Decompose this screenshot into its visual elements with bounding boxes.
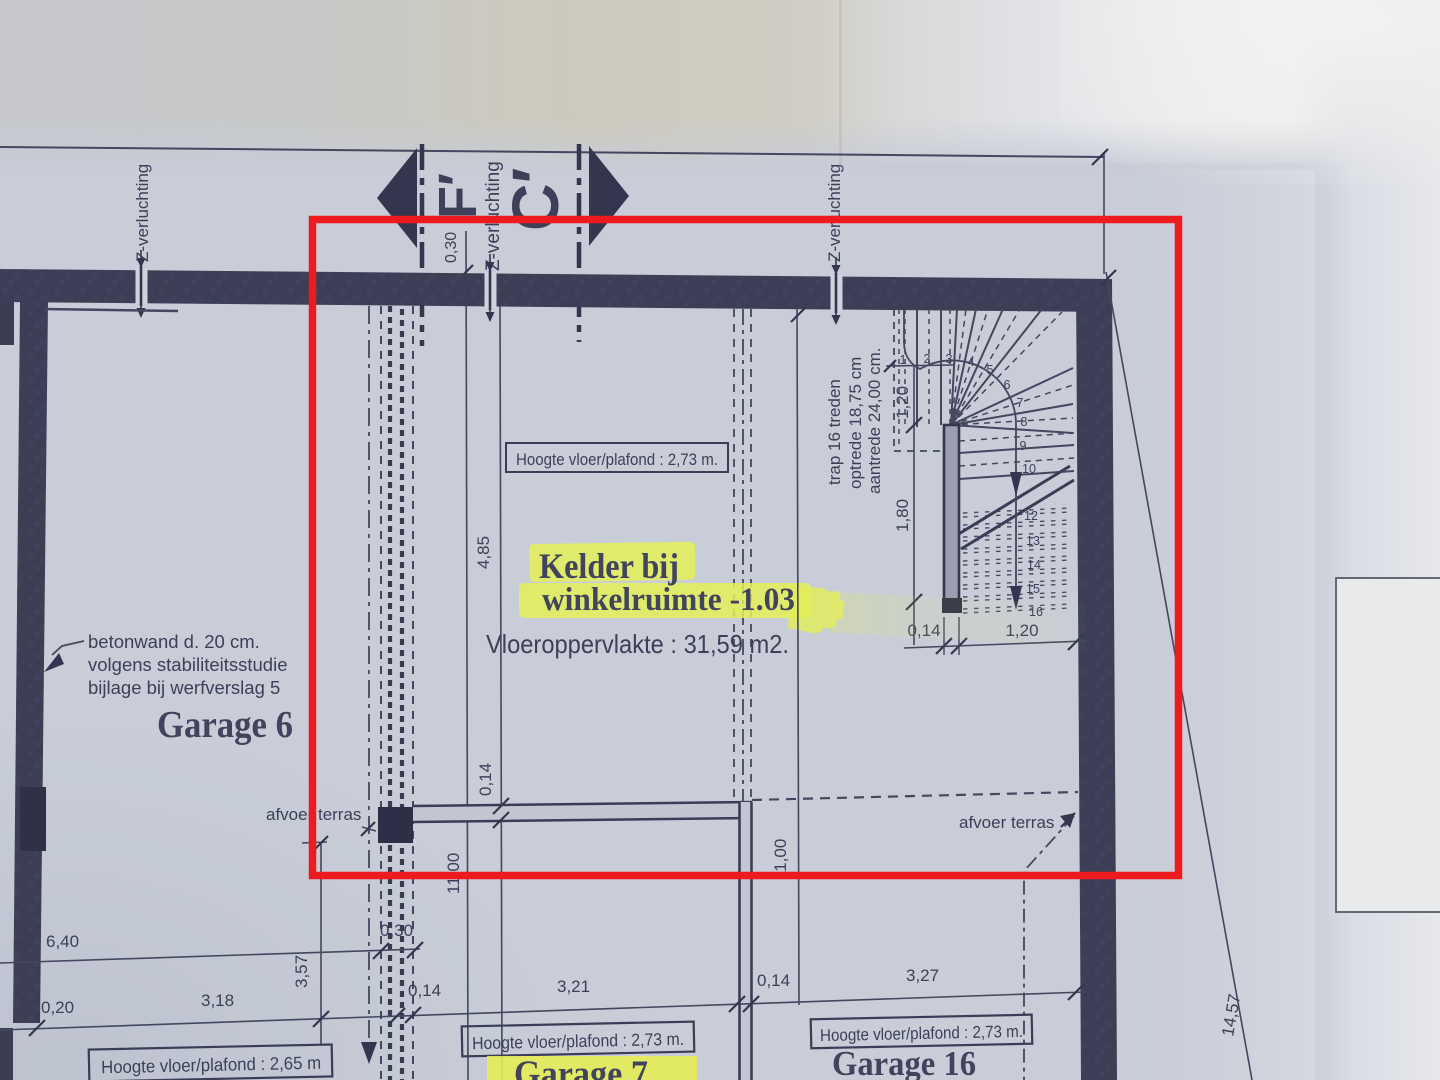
svg-text:1: 1 [900, 353, 907, 367]
svg-text:trap 16 treden: trap 16 treden [825, 379, 844, 485]
svg-text:Vloeroppervlakte : 31,59 m2.: Vloeroppervlakte : 31,59 m2. [486, 629, 789, 659]
svg-text:0,20: 0,20 [41, 998, 74, 1017]
svg-text:3,57: 3,57 [292, 955, 311, 988]
svg-text:aantrede 24,00 cm.: aantrede 24,00 cm. [865, 348, 884, 494]
svg-text:8: 8 [1021, 415, 1028, 429]
svg-text:winkelruimte -1.03: winkelruimte -1.03 [542, 582, 795, 618]
svg-text:Z-verluchting: Z-verluchting [133, 164, 152, 262]
svg-text:0,30: 0,30 [443, 232, 460, 263]
svg-text:Garage 16: Garage 16 [832, 1044, 976, 1080]
svg-text:5: 5 [987, 363, 994, 377]
svg-text:Z-verluchting: Z-verluchting [825, 164, 844, 262]
svg-text:15: 15 [1026, 582, 1040, 596]
svg-text:bijlage bij werfverslag 5: bijlage bij werfverslag 5 [88, 677, 280, 698]
svg-text:3: 3 [946, 352, 953, 366]
svg-text:4,85: 4,85 [474, 536, 493, 569]
svg-text:0,14: 0,14 [476, 763, 495, 796]
svg-text:4: 4 [968, 355, 975, 369]
svg-text:Kelder bij: Kelder bij [539, 546, 679, 586]
svg-text:14: 14 [1027, 558, 1041, 572]
svg-text:0,30: 0,30 [380, 921, 413, 940]
svg-text:betonwand d. 20 cm.: betonwand d. 20 cm. [88, 631, 260, 652]
svg-text:Hoogte vloer/plafond : 2,73 m.: Hoogte vloer/plafond : 2,73 m. [516, 450, 718, 469]
svg-text:2: 2 [924, 352, 931, 366]
svg-text:3,21: 3,21 [557, 977, 590, 996]
svg-text:0,14: 0,14 [408, 981, 441, 1000]
svg-text:3,27: 3,27 [906, 966, 939, 985]
svg-text:optrede 18,75 cm: optrede 18,75 cm [846, 357, 865, 489]
svg-text:F′: F′ [428, 173, 488, 219]
svg-text:Garage 6: Garage 6 [157, 704, 293, 746]
svg-text:6,40: 6,40 [46, 932, 79, 951]
svg-text:9: 9 [1020, 439, 1027, 453]
svg-text:volgens stabiliteitsstudie: volgens stabiliteitsstudie [88, 654, 288, 675]
svg-text:1,80: 1,80 [893, 499, 912, 532]
svg-text:0,14: 0,14 [757, 971, 790, 990]
svg-text:3,18: 3,18 [201, 991, 234, 1010]
svg-text:6: 6 [1004, 378, 1011, 392]
svg-text:13: 13 [1026, 534, 1040, 548]
svg-text:10: 10 [1022, 462, 1036, 476]
svg-text:1,20: 1,20 [893, 386, 912, 419]
svg-text:12: 12 [1024, 509, 1038, 523]
svg-text:afvoer terras: afvoer terras [959, 813, 1054, 832]
svg-text:Garage 7: Garage 7 [514, 1054, 648, 1080]
svg-text:7: 7 [1017, 396, 1024, 410]
